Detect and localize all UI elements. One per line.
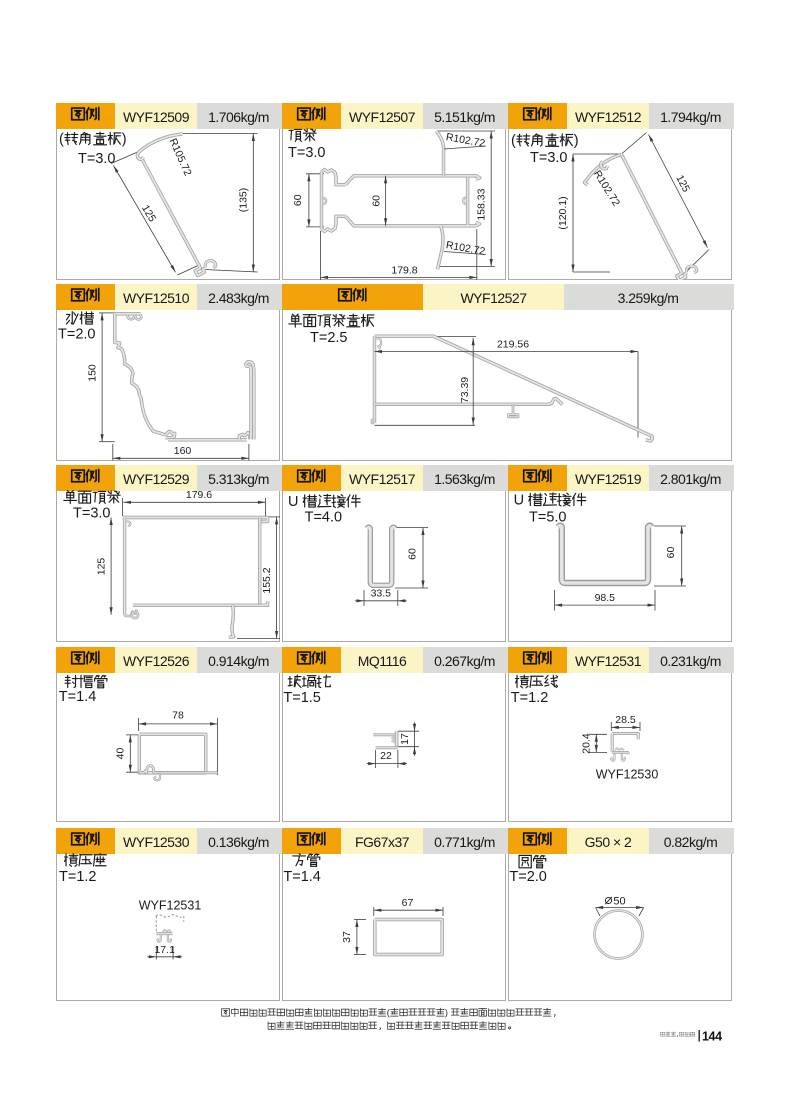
svg-text:0.136kg/m: 0.136kg/m (208, 833, 269, 849)
svg-text:0.82kg/m: 0.82kg/m (664, 833, 718, 849)
svg-text:0.231kg/m: 0.231kg/m (660, 652, 721, 668)
svg-text:WYF12529: WYF12529 (123, 470, 190, 486)
svg-text:28.5: 28.5 (615, 714, 636, 726)
svg-text:T=1.4: T=1.4 (59, 689, 96, 705)
svg-text:150: 150 (87, 364, 99, 382)
svg-text:U: U (514, 492, 524, 508)
svg-text:WYF12517: WYF12517 (349, 470, 416, 486)
svg-text:T=1.4: T=1.4 (283, 869, 320, 885)
svg-text:R102.72: R102.72 (591, 168, 622, 208)
svg-text:179.8: 179.8 (391, 265, 417, 277)
svg-text:FG67x37: FG67x37 (355, 833, 410, 849)
svg-text:): ) (122, 132, 127, 148)
svg-text:T=2.0: T=2.0 (509, 869, 546, 885)
svg-text:5.313kg/m: 5.313kg/m (208, 470, 269, 486)
svg-text:17.1: 17.1 (154, 944, 175, 956)
svg-text:125: 125 (96, 557, 108, 575)
svg-text:60: 60 (407, 548, 419, 560)
svg-text:60: 60 (292, 194, 304, 206)
svg-text:98.5: 98.5 (595, 592, 616, 604)
svg-text:22: 22 (380, 750, 392, 762)
svg-text:60: 60 (665, 546, 677, 558)
svg-text:2.483kg/m: 2.483kg/m (208, 289, 269, 305)
svg-text:T=1.2: T=1.2 (59, 869, 96, 885)
svg-text:T=2.5: T=2.5 (310, 330, 347, 346)
svg-text:219.56: 219.56 (497, 338, 529, 350)
svg-text:T=4.0: T=4.0 (305, 509, 342, 525)
svg-text:T=3.0: T=3.0 (288, 145, 325, 161)
svg-text:20.4: 20.4 (581, 733, 593, 754)
svg-text:3.259kg/m: 3.259kg/m (618, 289, 679, 305)
svg-text:1.706kg/m: 1.706kg/m (208, 109, 269, 125)
svg-text:155.2: 155.2 (261, 567, 273, 593)
svg-text:(: ( (387, 1008, 390, 1018)
svg-text:U: U (288, 494, 298, 510)
svg-text:67: 67 (402, 897, 414, 909)
svg-text:WYF12531: WYF12531 (575, 652, 642, 668)
svg-text:0.914kg/m: 0.914kg/m (208, 652, 269, 668)
svg-text:WYF12507: WYF12507 (349, 109, 416, 125)
svg-text:MQ1116: MQ1116 (358, 652, 407, 668)
svg-text:179.6: 179.6 (186, 489, 212, 501)
svg-text:(: ( (59, 132, 64, 148)
svg-text:WYF12527: WYF12527 (460, 289, 527, 305)
svg-text:T=3.0: T=3.0 (530, 150, 567, 166)
svg-text:33.5: 33.5 (371, 587, 392, 599)
svg-text:): ) (574, 133, 579, 149)
svg-text:WYF12512: WYF12512 (575, 109, 642, 125)
svg-text:125: 125 (139, 203, 158, 224)
svg-text:5.151kg/m: 5.151kg/m (434, 109, 495, 125)
svg-text:158.33: 158.33 (475, 188, 487, 220)
svg-text:1.563kg/m: 1.563kg/m (434, 470, 495, 486)
svg-text:): ) (445, 1008, 448, 1018)
svg-text:78: 78 (172, 709, 184, 721)
svg-text:T=3.0: T=3.0 (73, 505, 110, 521)
svg-text:WYF12510: WYF12510 (123, 289, 190, 305)
svg-text:0.267kg/m: 0.267kg/m (434, 652, 495, 668)
svg-text:T=3.0: T=3.0 (78, 151, 115, 167)
svg-text:0.771kg/m: 0.771kg/m (434, 833, 495, 849)
svg-text:T=2.0: T=2.0 (58, 326, 95, 342)
svg-text:T=1.5: T=1.5 (283, 690, 320, 706)
svg-text:(135): (135) (238, 188, 250, 213)
svg-text:(120.1): (120.1) (557, 196, 569, 229)
svg-text:R105.72: R105.72 (167, 137, 194, 178)
svg-text:WYF12519: WYF12519 (575, 470, 642, 486)
svg-text:160: 160 (174, 445, 192, 457)
svg-text:144: 144 (702, 1030, 722, 1044)
svg-text:125: 125 (673, 173, 692, 194)
svg-text:R102.72: R102.72 (445, 239, 486, 258)
svg-text:1.794kg/m: 1.794kg/m (660, 109, 721, 125)
svg-text:40: 40 (115, 747, 127, 759)
svg-text:17: 17 (399, 733, 411, 745)
svg-text:2.801kg/m: 2.801kg/m (660, 470, 721, 486)
svg-text:WYF12509: WYF12509 (123, 109, 190, 125)
svg-text:WYF12531: WYF12531 (139, 898, 202, 912)
svg-text:37: 37 (341, 931, 353, 943)
svg-text:WYF12530: WYF12530 (596, 767, 659, 781)
svg-text:73.39: 73.39 (459, 376, 471, 402)
svg-text:WYF12530: WYF12530 (123, 833, 190, 849)
svg-text:G50 × 2: G50 × 2 (585, 833, 632, 849)
svg-text:60: 60 (370, 195, 382, 207)
svg-text:T=1.2: T=1.2 (511, 690, 548, 706)
svg-text:(: ( (511, 133, 516, 149)
svg-text:WYF12526: WYF12526 (123, 652, 190, 668)
svg-text:50: 50 (613, 895, 625, 907)
